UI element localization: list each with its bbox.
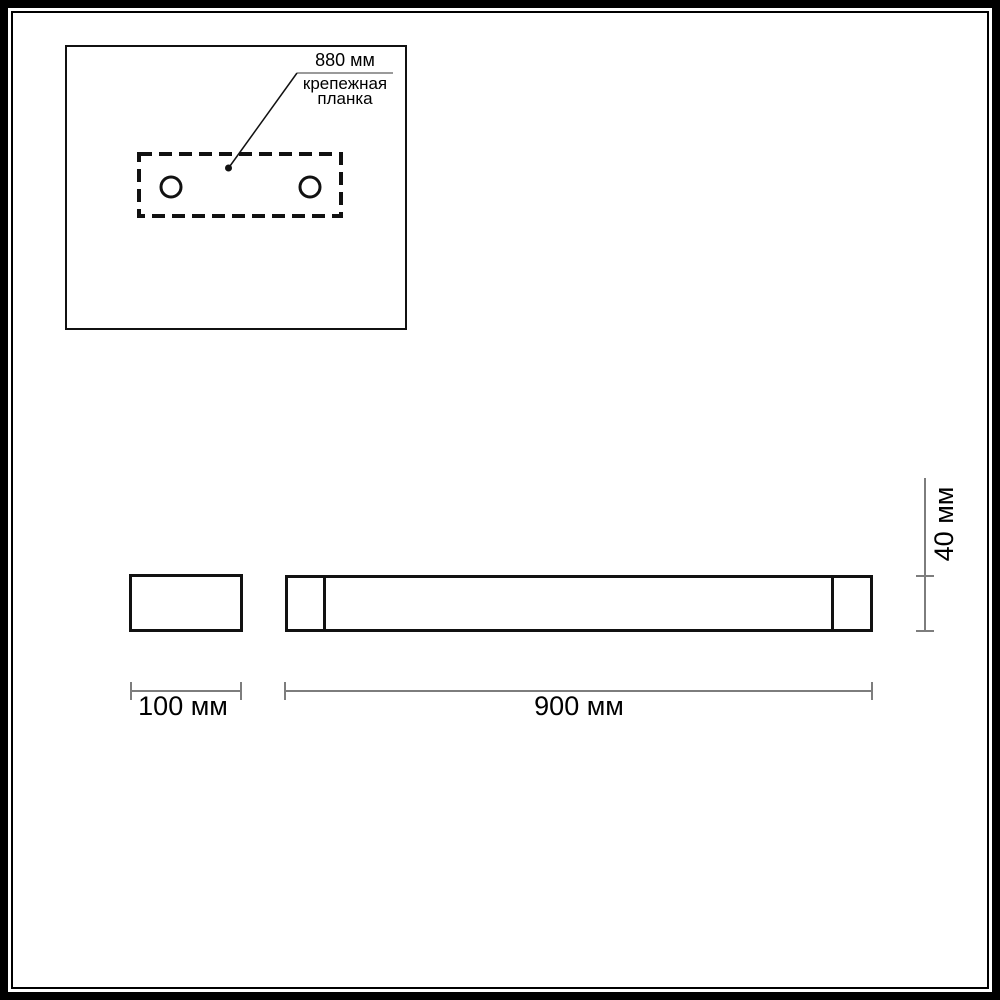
mounting-plate-caption: крепежная планка (297, 76, 393, 106)
dim-tick-900mm-left (284, 682, 286, 700)
dim-tick-40mm-bottom (916, 630, 934, 632)
front-view-endcap-left-line (323, 578, 326, 629)
dim-label-40mm: 40 мм (929, 469, 959, 579)
dim-label-900mm: 900 мм (519, 691, 639, 721)
dim-tick-900mm-right (871, 682, 873, 700)
dim-label-100mm: 100 мм (123, 691, 243, 721)
dim-line-40mm (924, 478, 926, 631)
mounting-plate-caption-line2: планка (297, 91, 393, 106)
front-view-endcap-right-line (831, 578, 834, 629)
mounting-plate-width-label: 880 мм (297, 50, 393, 70)
technical-dimension-drawing: 880 мм крепежная планка 100 мм 900 мм 40… (0, 0, 1000, 1000)
front-view-rectangle (285, 575, 873, 632)
side-view-rectangle (129, 574, 243, 632)
